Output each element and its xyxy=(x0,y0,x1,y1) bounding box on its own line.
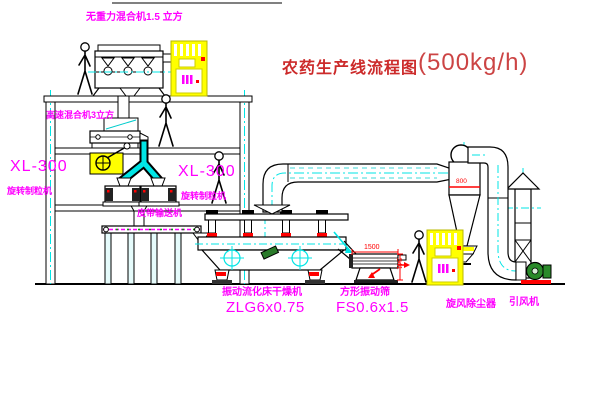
control-cabinet-ground xyxy=(427,230,463,285)
title-capacity: (500kg/h) xyxy=(418,49,528,77)
granulator-left xyxy=(103,178,143,206)
granulator-right xyxy=(139,178,179,206)
dimension-screen-height: 541 xyxy=(395,258,402,270)
exhaust-duct xyxy=(254,164,452,214)
dimension-cyclone-diameter: 800 xyxy=(456,179,467,186)
label-screen-name: 方形振动筛 xyxy=(340,288,390,298)
belt-conveyor xyxy=(102,226,209,284)
label-cyclone: 旋风除尘器 xyxy=(446,300,496,310)
control-cabinet-top xyxy=(171,41,207,96)
label-granulator-right-name: 旋转制粒机 xyxy=(181,192,226,201)
label-fan: 引风机 xyxy=(509,298,539,308)
diagram-title: 农药生产线流程图 (500kg/h) xyxy=(282,49,528,78)
person-figure-ground xyxy=(412,231,426,282)
label-dryer-name: 振动流化床干燥机 xyxy=(222,288,302,298)
gravity-free-mixer xyxy=(88,45,174,118)
flow-diagram-canvas: 农药生产线流程图 (500kg/h) 无重力混合机1.5 立方 高速混合机3立方… xyxy=(0,0,600,403)
label-belt-conveyor: 皮带输送机 xyxy=(137,209,182,218)
induced-draft-fan xyxy=(516,262,551,284)
person-figure-top-floor xyxy=(78,43,92,94)
title-chinese: 农药生产线流程图 xyxy=(282,49,418,78)
label-screen-model: FS0.6x1.5 xyxy=(336,300,409,315)
label-granulator-left-name: 旋转制粒机 xyxy=(7,187,52,196)
label-granulator-left-model: XL-300 xyxy=(10,159,68,175)
label-high-speed-mixer: 高速混合机3立方 xyxy=(46,111,114,120)
label-dryer-model: ZLG6x0.75 xyxy=(226,300,305,315)
label-granulator-right-model: XL-300 xyxy=(178,164,236,180)
label-gravity-mixer: 无重力混合机1.5 立方 xyxy=(86,13,183,23)
dimension-screen-length: 1500 xyxy=(364,244,380,251)
